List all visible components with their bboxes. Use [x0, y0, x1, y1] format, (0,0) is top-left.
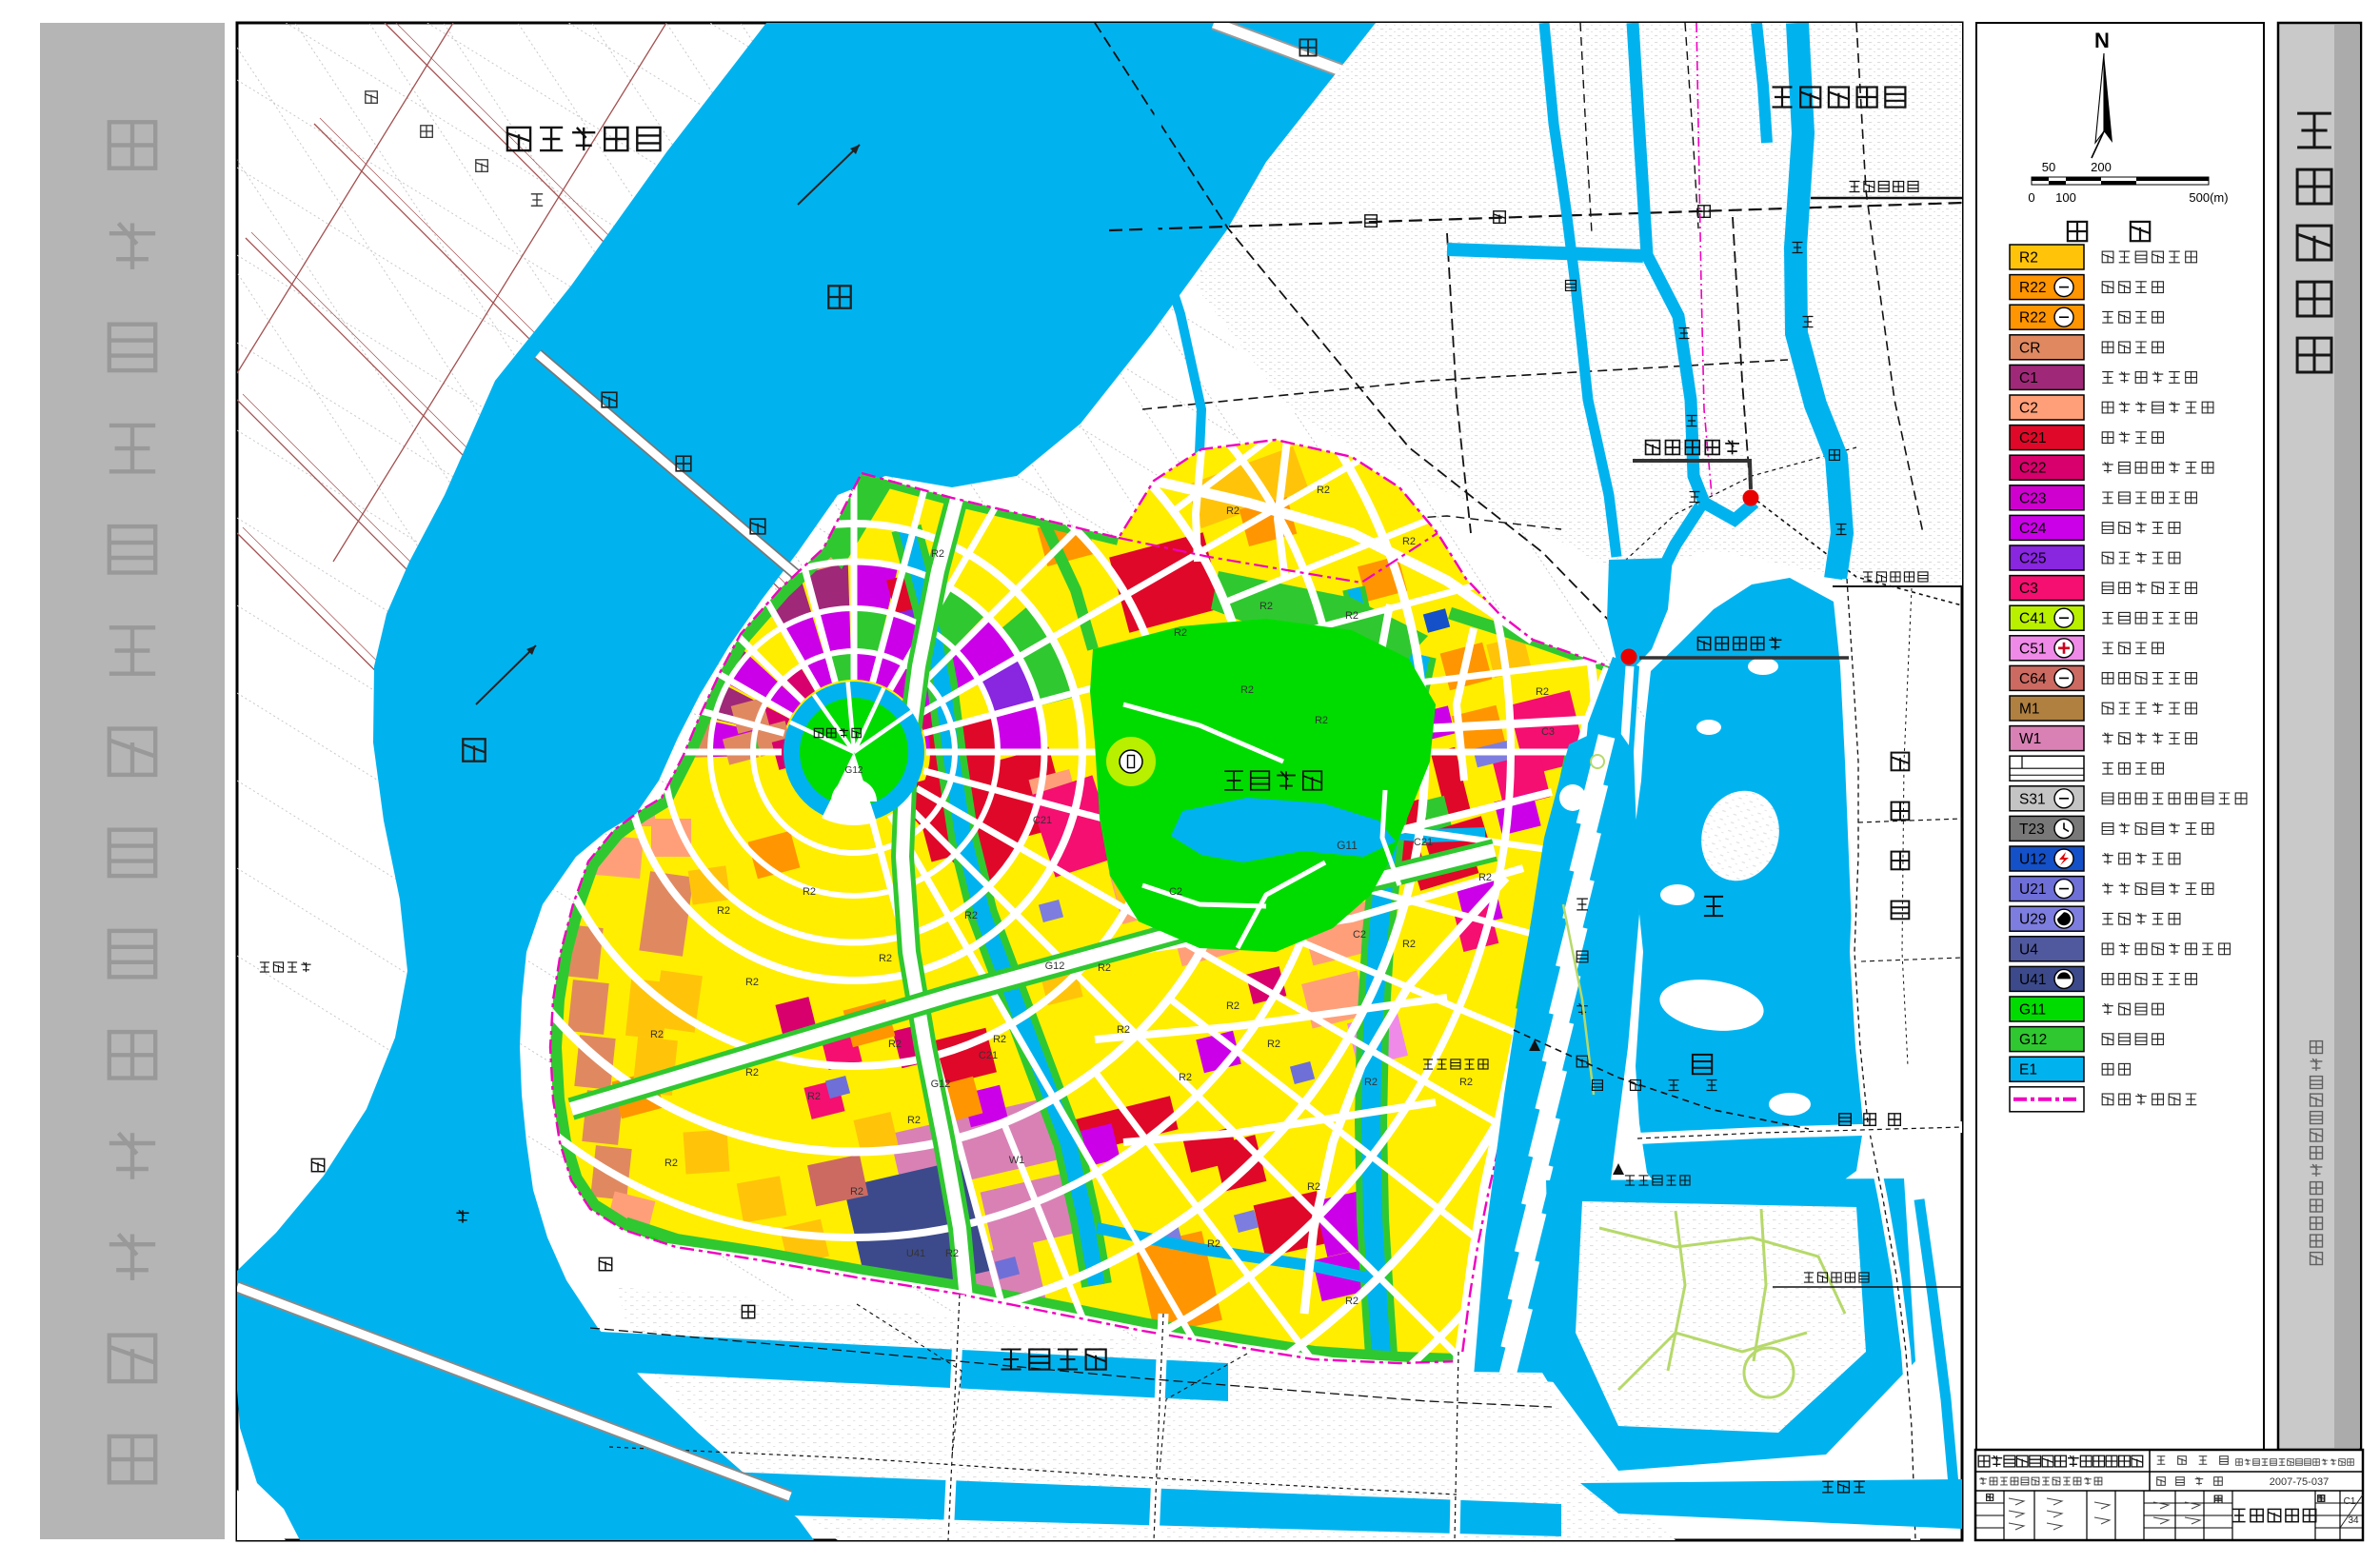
- svg-text:C1: C1: [2344, 1496, 2356, 1507]
- svg-text:C24: C24: [2019, 521, 2047, 537]
- svg-text:C2: C2: [1353, 929, 1366, 940]
- svg-text:R2: R2: [1459, 1077, 1473, 1088]
- svg-text:S31: S31: [2019, 791, 2046, 807]
- svg-text:R2: R2: [1307, 1181, 1320, 1193]
- svg-text:C2: C2: [2019, 401, 2038, 417]
- svg-text:R2: R2: [1179, 1072, 1192, 1083]
- svg-text:C64: C64: [2019, 671, 2047, 687]
- svg-text:R22: R22: [2019, 310, 2046, 327]
- svg-text:R2: R2: [650, 1029, 664, 1040]
- svg-text:G11: G11: [2019, 1002, 2046, 1019]
- svg-text:C1: C1: [2019, 370, 2038, 386]
- svg-text:R2: R2: [1402, 939, 1416, 950]
- svg-text:R2: R2: [1345, 610, 1359, 622]
- svg-text:R2: R2: [1240, 684, 1254, 696]
- svg-text:R2: R2: [888, 1039, 902, 1050]
- svg-text:R2: R2: [1174, 627, 1187, 639]
- svg-text:C41: C41: [2019, 611, 2046, 627]
- svg-text:C23: C23: [2019, 490, 2046, 506]
- svg-text:N: N: [2094, 29, 2110, 52]
- svg-text:100: 100: [2055, 190, 2076, 205]
- svg-text:R2: R2: [1317, 485, 1330, 496]
- svg-text:R2: R2: [1267, 1039, 1280, 1050]
- svg-text:G11: G11: [1337, 839, 1358, 852]
- svg-text:U21: U21: [2019, 881, 2046, 898]
- svg-text:E1: E1: [2019, 1062, 2037, 1079]
- svg-text:R2: R2: [1117, 1024, 1130, 1036]
- svg-text:R2: R2: [717, 905, 730, 917]
- svg-text:R2: R2: [1098, 962, 1111, 974]
- svg-text:R2: R2: [1207, 1238, 1220, 1250]
- svg-text:R2: R2: [807, 1091, 821, 1102]
- svg-text:M1: M1: [2019, 702, 2040, 718]
- svg-text:R2: R2: [1364, 1077, 1378, 1088]
- svg-text:R2: R2: [1259, 601, 1273, 612]
- svg-text:R2: R2: [879, 953, 892, 964]
- svg-text:C3: C3: [2019, 581, 2038, 597]
- svg-text:R2: R2: [1402, 536, 1416, 547]
- svg-text:0: 0: [2028, 190, 2034, 205]
- svg-text:2007-75-037: 2007-75-037: [2270, 1476, 2329, 1488]
- svg-text:G12: G12: [931, 1079, 951, 1090]
- svg-text:U41: U41: [906, 1248, 925, 1259]
- svg-text:500(m): 500(m): [2189, 190, 2228, 205]
- svg-text:U12: U12: [2019, 852, 2046, 868]
- svg-text:R2: R2: [1536, 686, 1549, 698]
- svg-text:G12: G12: [2019, 1032, 2047, 1048]
- svg-text:C21: C21: [1414, 837, 1433, 848]
- svg-text:C21: C21: [2019, 430, 2046, 446]
- svg-text:R2: R2: [664, 1158, 678, 1169]
- svg-text:34: 34: [2348, 1515, 2359, 1526]
- svg-text:C3: C3: [1541, 726, 1555, 738]
- svg-text:R2: R2: [745, 977, 759, 988]
- svg-text:CR: CR: [2019, 340, 2040, 356]
- svg-text:W1: W1: [2019, 731, 2041, 747]
- svg-text:R2: R2: [850, 1186, 863, 1198]
- svg-text:C21: C21: [1033, 815, 1052, 826]
- svg-text:R2: R2: [1478, 872, 1492, 883]
- svg-text:R2: R2: [1345, 1296, 1359, 1307]
- svg-text:200: 200: [2091, 160, 2112, 174]
- svg-text:R2: R2: [1315, 715, 1328, 726]
- svg-text:G12: G12: [1045, 960, 1065, 972]
- svg-text:U29: U29: [2019, 912, 2046, 928]
- svg-text:T23: T23: [2019, 822, 2045, 838]
- svg-text:C25: C25: [2019, 551, 2046, 567]
- svg-text:R2: R2: [2019, 250, 2038, 267]
- svg-text:R2: R2: [907, 1115, 921, 1126]
- svg-text:R2: R2: [964, 910, 978, 921]
- svg-text:U41: U41: [2019, 972, 2046, 988]
- svg-text:C2: C2: [1169, 886, 1182, 898]
- svg-text:R2: R2: [1226, 1000, 1240, 1012]
- svg-text:W1: W1: [1009, 1155, 1025, 1166]
- svg-text:C21: C21: [979, 1050, 998, 1061]
- svg-text:C22: C22: [2019, 461, 2046, 477]
- svg-text:R2: R2: [945, 1248, 959, 1259]
- svg-text:50: 50: [2042, 160, 2055, 174]
- svg-text:G12: G12: [845, 765, 863, 776]
- svg-text:R2: R2: [803, 886, 816, 898]
- svg-text:R22: R22: [2019, 280, 2046, 296]
- svg-text:R2: R2: [1226, 505, 1240, 517]
- svg-text:R2: R2: [993, 1034, 1006, 1045]
- svg-text:C51: C51: [2019, 641, 2046, 657]
- svg-text:U4: U4: [2019, 941, 2038, 958]
- svg-text:R2: R2: [931, 548, 944, 560]
- svg-text:R2: R2: [745, 1067, 759, 1079]
